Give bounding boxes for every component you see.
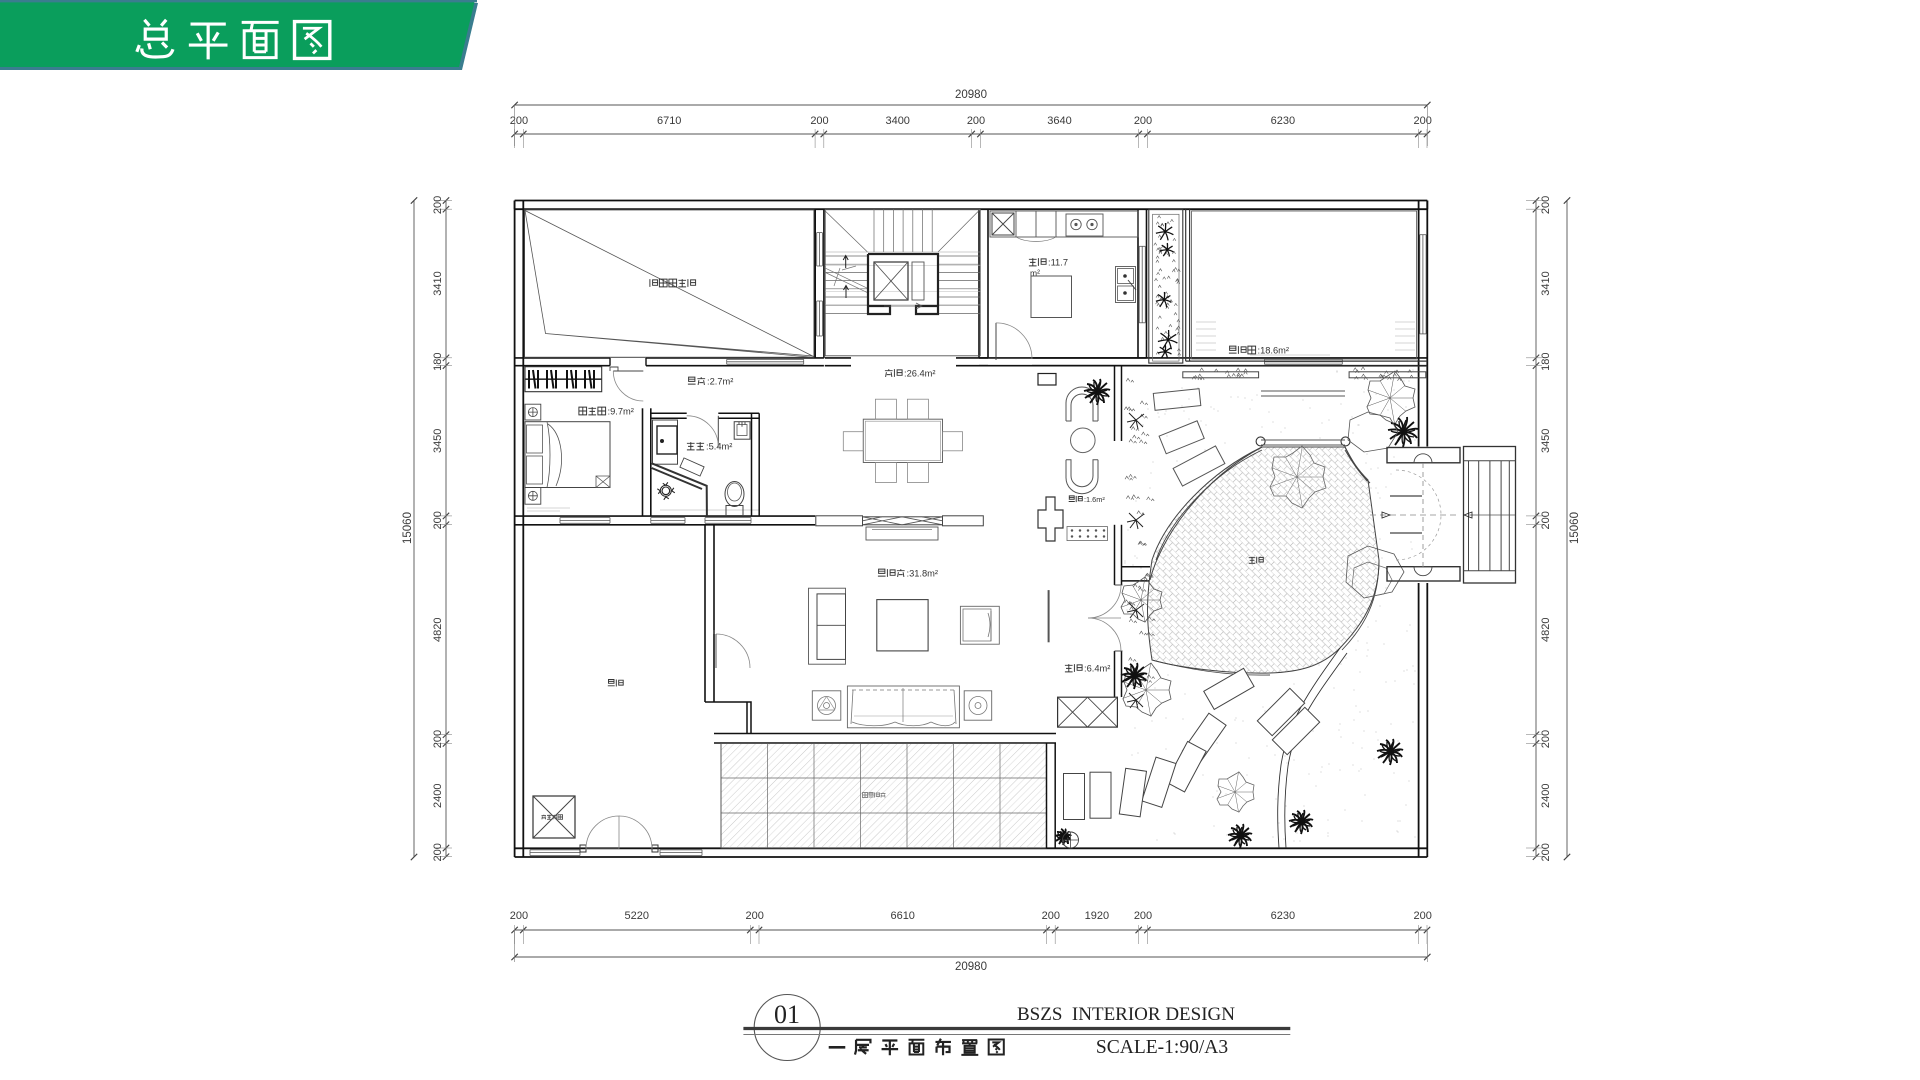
- svg-text:200: 200: [1042, 910, 1060, 922]
- svg-text::1.6m²: :1.6m²: [1084, 495, 1105, 504]
- svg-text::11.7: :11.7: [1048, 258, 1068, 268]
- svg-text:3450: 3450: [432, 429, 444, 453]
- svg-text:200: 200: [432, 730, 444, 748]
- svg-text:180: 180: [1540, 353, 1552, 371]
- svg-text::5.4m²: :5.4m²: [706, 442, 732, 452]
- svg-text:3410: 3410: [432, 271, 444, 295]
- svg-text:3450: 3450: [1540, 429, 1552, 453]
- svg-text:6710: 6710: [657, 115, 681, 127]
- svg-text:20980: 20980: [955, 89, 987, 101]
- svg-text:200: 200: [1134, 115, 1152, 127]
- svg-text:BSZS INTERIOR DESIGN: BSZS INTERIOR DESIGN: [1017, 1004, 1235, 1025]
- svg-text:200: 200: [432, 511, 444, 529]
- svg-text:200: 200: [1540, 730, 1552, 748]
- svg-text:15060: 15060: [1569, 512, 1581, 544]
- svg-text::26.4m²: :26.4m²: [904, 369, 936, 379]
- svg-text:3410: 3410: [1540, 271, 1552, 295]
- svg-text:4820: 4820: [432, 617, 444, 641]
- svg-text::2.7m²: :2.7m²: [707, 377, 733, 387]
- svg-text:200: 200: [510, 910, 528, 922]
- svg-text:6230: 6230: [1271, 115, 1295, 127]
- svg-text::31.8m²: :31.8m²: [907, 569, 939, 579]
- svg-text:200: 200: [1414, 115, 1432, 127]
- svg-text:200: 200: [432, 843, 444, 861]
- svg-text:01: 01: [774, 1000, 800, 1029]
- svg-text:200: 200: [510, 115, 528, 127]
- svg-text:3640: 3640: [1047, 115, 1071, 127]
- svg-text:SCALE-1:90/A3: SCALE-1:90/A3: [1096, 1037, 1228, 1058]
- svg-text:20980: 20980: [955, 961, 987, 973]
- svg-text:180: 180: [432, 353, 444, 371]
- svg-text::18.6m²: :18.6m²: [1258, 346, 1290, 356]
- svg-text:5220: 5220: [625, 910, 649, 922]
- svg-text:2400: 2400: [432, 783, 444, 807]
- svg-text:4820: 4820: [1540, 617, 1552, 641]
- svg-text:200: 200: [810, 115, 828, 127]
- svg-text:200: 200: [1540, 843, 1552, 861]
- svg-text:6610: 6610: [890, 910, 914, 922]
- svg-text:6230: 6230: [1271, 910, 1295, 922]
- svg-text:3400: 3400: [885, 115, 909, 127]
- svg-text:200: 200: [1540, 196, 1552, 214]
- svg-text::6.4m²: :6.4m²: [1084, 664, 1110, 674]
- svg-text:200: 200: [1414, 910, 1432, 922]
- svg-text:200: 200: [967, 115, 985, 127]
- svg-text:200: 200: [1540, 511, 1552, 529]
- svg-text:200: 200: [1134, 910, 1152, 922]
- svg-text:200: 200: [432, 196, 444, 214]
- svg-text:15060: 15060: [402, 512, 414, 544]
- svg-text::9.7m²: :9.7m²: [608, 407, 634, 417]
- svg-text:200: 200: [746, 910, 764, 922]
- svg-text:1920: 1920: [1085, 910, 1109, 922]
- svg-text:2400: 2400: [1540, 783, 1552, 807]
